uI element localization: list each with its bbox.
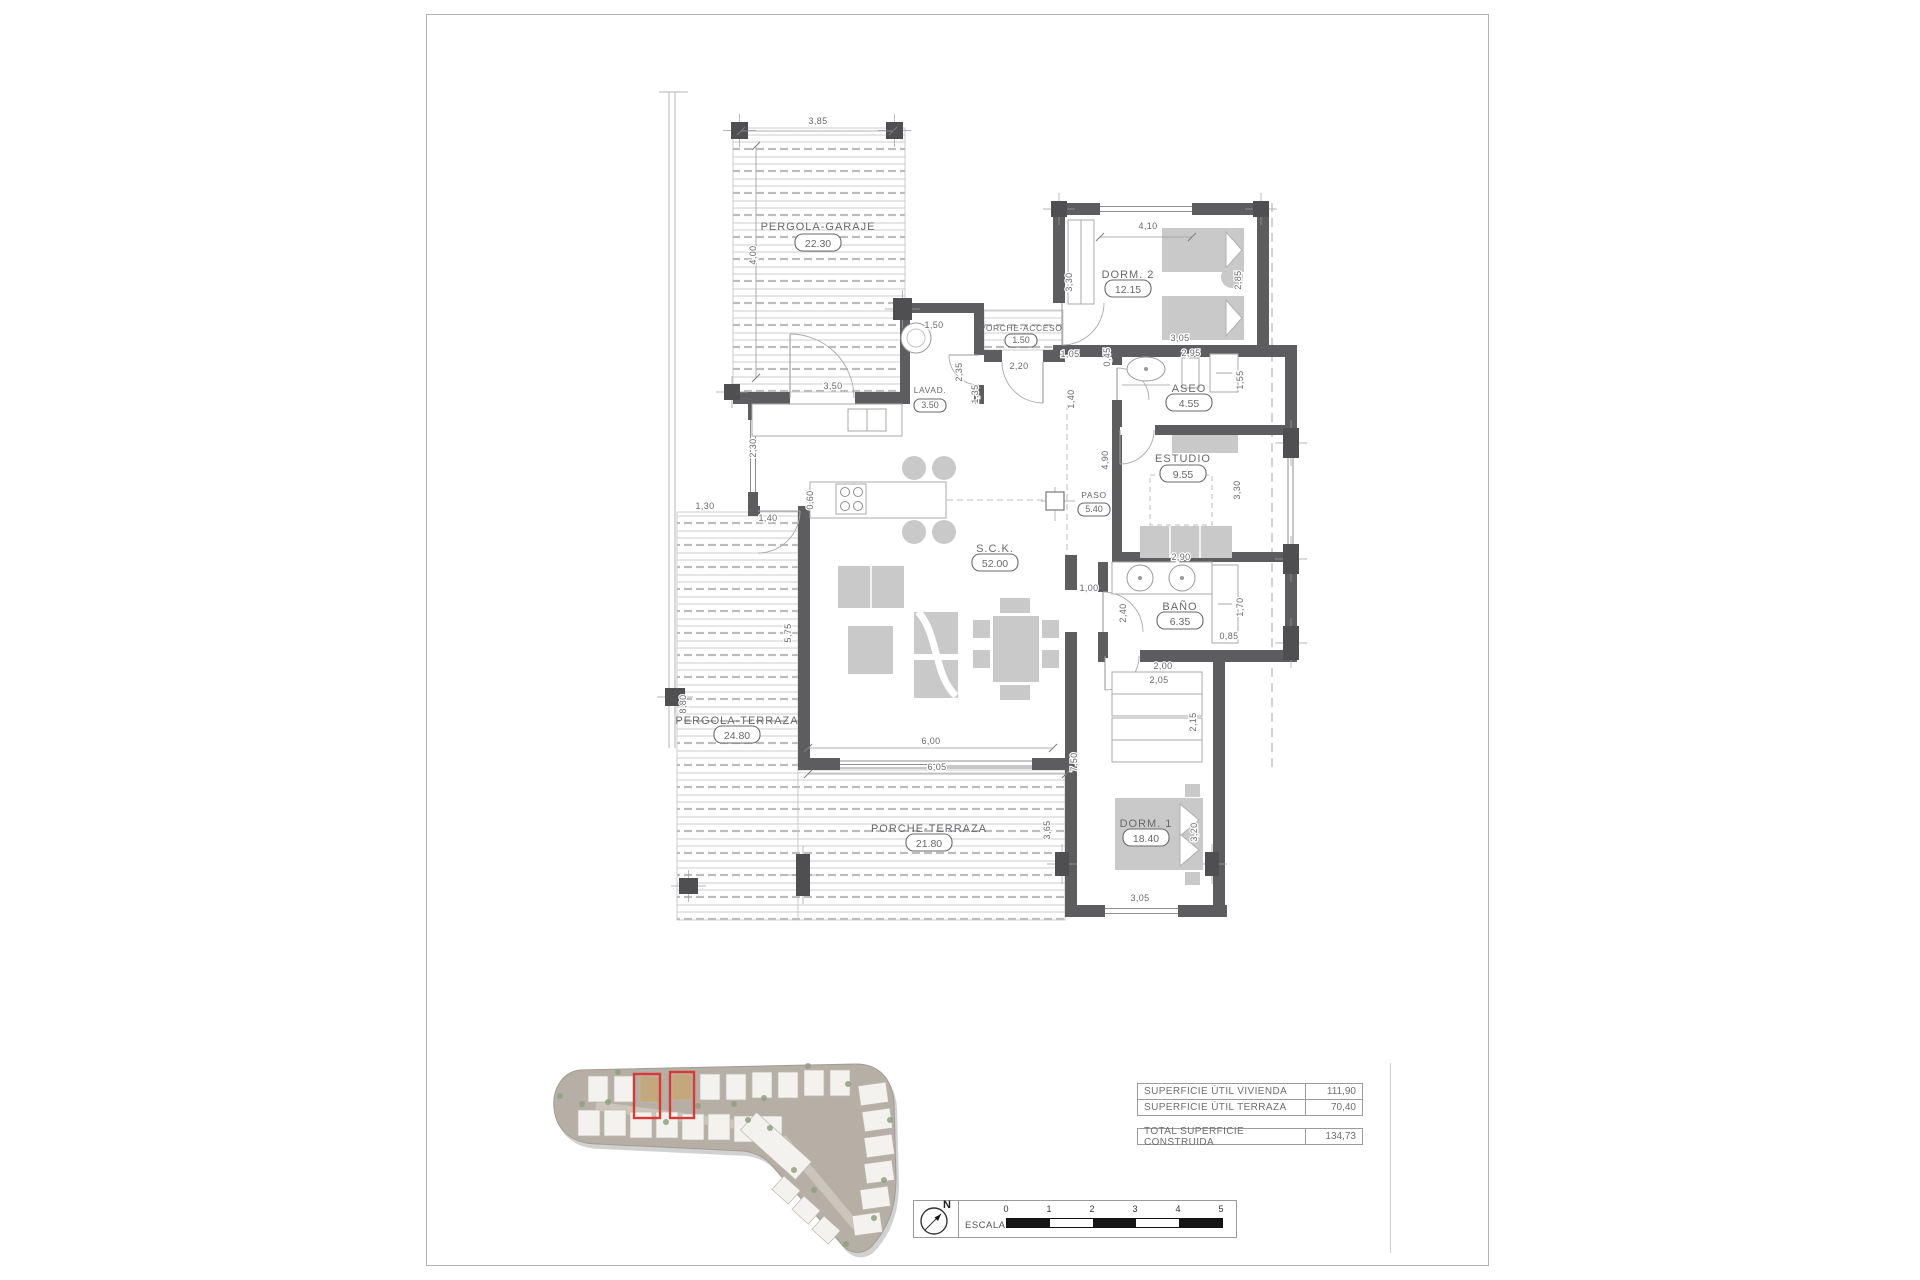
column: [1283, 428, 1299, 458]
site-house: [864, 1134, 895, 1158]
wall: [900, 303, 984, 313]
site-house: [860, 1186, 891, 1210]
wall: [1112, 425, 1120, 435]
chair: [973, 620, 990, 638]
dim-text-d_575: 5,75: [783, 623, 793, 642]
column: [1051, 201, 1067, 217]
dim-text-d_135: 1,35: [970, 384, 980, 403]
scale-segment: [1050, 1219, 1093, 1227]
column: [724, 384, 740, 400]
site-house: [726, 1074, 746, 1100]
scale-ticks: 0 1 2 3 4 5: [1006, 1204, 1221, 1216]
site-house: [778, 1072, 798, 1098]
site-tree: [557, 1093, 563, 1099]
dim-text-d_295: 2,95: [1181, 348, 1200, 358]
column: [1205, 852, 1219, 876]
site-tree: [663, 1119, 669, 1125]
room-area-aseo: 4.55: [1179, 398, 1200, 410]
site-house: [708, 1114, 730, 1140]
room-area-pergola_terraza: 24.80: [724, 730, 750, 742]
dim-text-d_490: 4,90: [1100, 450, 1110, 469]
column: [1283, 544, 1299, 574]
column: [1055, 852, 1069, 876]
site-tree: [791, 1167, 797, 1173]
bath-sink: [1138, 576, 1142, 580]
stool: [902, 520, 926, 544]
dim-text-d_220: 2,20: [1009, 361, 1028, 371]
dim-text-d_320: 3,20: [1189, 822, 1199, 841]
wall: [798, 506, 810, 770]
wall: [984, 350, 1002, 362]
dorm2-door-swing: [1062, 303, 1104, 345]
dim-text-d_230: 2,30: [748, 438, 758, 457]
site-house: [614, 1076, 634, 1102]
room-label-dorm1: DORM. 1: [1120, 818, 1173, 830]
room-label-lavad: LAVAD.: [914, 385, 947, 395]
dim-text-d_365: 3,65: [1042, 820, 1052, 839]
dim-text-d_290: 2,90: [1171, 552, 1190, 562]
wall: [1065, 905, 1105, 917]
room-label-pergola_garaje: PERGOLA-GARAJE: [761, 221, 876, 233]
floor-plan-drawing: PERGOLA-GARAJE22.30PORCHE-ACCESO1.50LAVA…: [0, 0, 1920, 1280]
site-house: [640, 1076, 660, 1102]
chair: [1042, 620, 1059, 638]
wall: [855, 392, 906, 404]
dim-text-d_285: 2,85: [1233, 270, 1243, 289]
column: [796, 854, 810, 896]
dim-text-d_400: 4,00: [748, 245, 758, 264]
room-area-pergola_garaje: 22.30: [805, 238, 831, 250]
chair: [1000, 685, 1030, 700]
dim-text-d_235: 2,35: [954, 362, 964, 381]
dim-text-d_305a: 3,05: [1170, 333, 1189, 343]
stool: [902, 456, 926, 480]
dim-text-d_200: 2,00: [1153, 661, 1172, 671]
scale-tick: 1: [1046, 1204, 1051, 1214]
room-label-bano: BAÑO: [1162, 600, 1197, 613]
scale-label: ESCALA :: [965, 1220, 1011, 1231]
column: [731, 122, 748, 139]
scale-tick: 5: [1218, 1204, 1223, 1214]
room-area-dorm1: 18.40: [1133, 833, 1159, 845]
wall: [1257, 203, 1269, 357]
room-label-estudio: ESTUDIO: [1155, 453, 1211, 465]
dim-text-d_150: 1,50: [924, 320, 943, 330]
dim-text-d_330b: 3,30: [1232, 480, 1242, 499]
site-tree: [871, 1215, 877, 1221]
row-value: 111,90: [1306, 1086, 1362, 1097]
room-label-dorm2: DORM. 2: [1102, 269, 1155, 281]
stool: [932, 456, 956, 480]
row-value: 70,40: [1306, 1102, 1362, 1113]
desk: [1172, 435, 1238, 453]
site-house: [604, 1110, 626, 1136]
site-tree: [845, 1081, 851, 1087]
dim-text-d_240: 2,40: [1118, 603, 1128, 622]
site-tree: [805, 1063, 811, 1069]
kitchen-island: [810, 482, 946, 518]
site-tree: [615, 1069, 621, 1075]
dim-text-d_410: 4,10: [1138, 221, 1157, 231]
room-area-porche_terraza: 21.80: [916, 838, 942, 850]
scale-tick: 3: [1132, 1204, 1137, 1214]
site-tree: [811, 1187, 817, 1193]
site-house: [864, 1160, 895, 1184]
dim-text-d_085: 0,85: [1219, 631, 1238, 641]
room-area-lavad: 3.50: [921, 400, 939, 410]
chair: [1042, 650, 1059, 668]
dim-text-d_130: 1,30: [695, 501, 714, 511]
chair: [973, 650, 990, 668]
wall: [1098, 562, 1108, 592]
room-label-porche_acceso: PORCHE-ACCESO: [980, 323, 1063, 333]
room-label-porche_terraza: PORCHE-TERRAZA: [871, 823, 987, 835]
site-tree: [767, 1125, 773, 1131]
site-house: [752, 1072, 772, 1098]
column: [1253, 201, 1269, 217]
wall: [1155, 425, 1285, 435]
chair: [1000, 598, 1030, 613]
room-area-sck: 52.00: [982, 558, 1008, 570]
sheet-divider-line: [1390, 1063, 1391, 1253]
dim-text-d_045: 0,45: [1102, 347, 1112, 366]
table-row: SUPERFICIE ÚTIL VIVIENDA 111,90: [1137, 1083, 1363, 1100]
scale-segment: [1093, 1219, 1136, 1227]
site-tree: [843, 1241, 849, 1247]
site-house: [858, 1082, 889, 1106]
wall: [1098, 650, 1105, 662]
wall: [1112, 400, 1122, 427]
site-house: [700, 1074, 720, 1100]
dim-text-d_215: 2,15: [1188, 712, 1198, 731]
site-tree: [695, 1103, 701, 1109]
plan-sheet: PERGOLA-GARAJE22.30PORCHE-ACCESO1.50LAVA…: [0, 0, 1920, 1280]
room-label-sck: S.C.K.: [976, 543, 1014, 555]
dim-text-d_880: 8,80: [678, 694, 688, 713]
nightstand: [1185, 784, 1200, 797]
aseo-sink: [1144, 367, 1148, 371]
site-tree: [731, 1101, 737, 1107]
scale-tick: 0: [1003, 1204, 1008, 1214]
scale-segment: [1136, 1219, 1179, 1227]
bath-sink: [1180, 576, 1184, 580]
dim-text-d_205: 2,05: [1149, 675, 1168, 685]
row-label: SUPERFICIE ÚTIL TERRAZA: [1138, 1100, 1306, 1115]
site-tree: [745, 1117, 751, 1123]
dim-text-d_385: 3,85: [808, 116, 827, 126]
column: [886, 122, 903, 139]
site-tree: [887, 1117, 893, 1123]
scale-segment: [1179, 1219, 1222, 1227]
site-house: [672, 1074, 692, 1100]
wall: [1112, 357, 1122, 365]
dim-text-d_605: 6,05: [927, 762, 946, 772]
dim-text-d_140a: 1,40: [1066, 389, 1076, 408]
site-tree: [579, 1101, 585, 1107]
dim-text-d_600: 6,00: [921, 736, 940, 746]
deck-pergola-garaje: [733, 128, 905, 392]
wall: [798, 758, 840, 770]
wall: [1065, 655, 1077, 917]
row-value: 134,73: [1306, 1131, 1362, 1142]
dim-text-d_330a: 3,30: [1064, 272, 1074, 291]
site-tree: [761, 1095, 767, 1101]
rug: [848, 626, 893, 674]
scale-bar: N ESCALA : 0 1 2 3 4 5: [913, 1200, 1237, 1238]
wall: [1065, 555, 1077, 590]
dining-table: [993, 616, 1039, 682]
room-area-bano: 6.35: [1170, 616, 1191, 628]
room-area-porche_acceso: 1.50: [1012, 335, 1030, 345]
dim-text-d_105: 1,05: [1060, 349, 1079, 359]
north-label: N: [943, 1199, 951, 1211]
room-area-paso: 5.40: [1085, 504, 1103, 514]
room-label-paso: PASO: [1081, 490, 1106, 500]
dim-text-d_060: 0,60: [805, 490, 815, 509]
dim-text-d_155: 1,55: [1235, 370, 1245, 389]
table-total-row: TOTAL SUPERFICIE CONSTRUIDA 134,73: [1137, 1128, 1363, 1145]
area-summary-table: SUPERFICIE ÚTIL VIVIENDA 111,90 SUPERFIC…: [1137, 1083, 1363, 1145]
column: [1283, 626, 1299, 660]
site-house: [804, 1070, 824, 1096]
row-label: TOTAL SUPERFICIE CONSTRUIDA: [1138, 1129, 1306, 1144]
room-area-dorm2: 12.15: [1115, 284, 1141, 296]
wall: [1213, 662, 1225, 917]
room-area-estudio: 9.55: [1173, 469, 1194, 481]
dim-text-d_750: 7,50: [1069, 752, 1079, 771]
site-plan-inset: [548, 1058, 918, 1268]
row-label: SUPERFICIE ÚTIL VIVIENDA: [1138, 1084, 1306, 1099]
site-tree: [605, 1099, 611, 1105]
site-house: [852, 1212, 883, 1236]
column: [679, 878, 698, 894]
site-house: [588, 1076, 608, 1102]
wall: [1065, 632, 1077, 655]
paso-symbol: [1046, 492, 1064, 510]
stool: [932, 520, 956, 544]
dim-text-d_350: 3,50: [823, 381, 842, 391]
north-arrow: N: [914, 1201, 959, 1237]
dim-text-d_100: 1,00: [1079, 583, 1098, 593]
nightstand: [1185, 872, 1200, 885]
wall: [1178, 905, 1227, 917]
dim-text-d_305b: 3,05: [1130, 893, 1149, 903]
dim-text-d_170: 1,70: [1235, 597, 1245, 616]
scale-segment: [1007, 1219, 1050, 1227]
column: [893, 298, 912, 320]
wall: [733, 392, 790, 404]
north-arrow-icon: [914, 1201, 958, 1237]
estudio-door-swing: [1120, 430, 1154, 464]
table-row: SUPERFICIE ÚTIL TERRAZA 70,40: [1137, 1099, 1363, 1116]
room-label-aseo: ASEO: [1172, 383, 1207, 395]
site-house: [578, 1110, 600, 1136]
scale-tick: 4: [1175, 1204, 1180, 1214]
site-tree: [881, 1177, 887, 1183]
dim-text-d_140b: 1,40: [758, 513, 777, 523]
scale-segments: [1006, 1218, 1223, 1228]
room-label-pergola_terraza: PERGOLA-TERRAZA: [675, 715, 798, 727]
scale-tick: 2: [1089, 1204, 1094, 1214]
